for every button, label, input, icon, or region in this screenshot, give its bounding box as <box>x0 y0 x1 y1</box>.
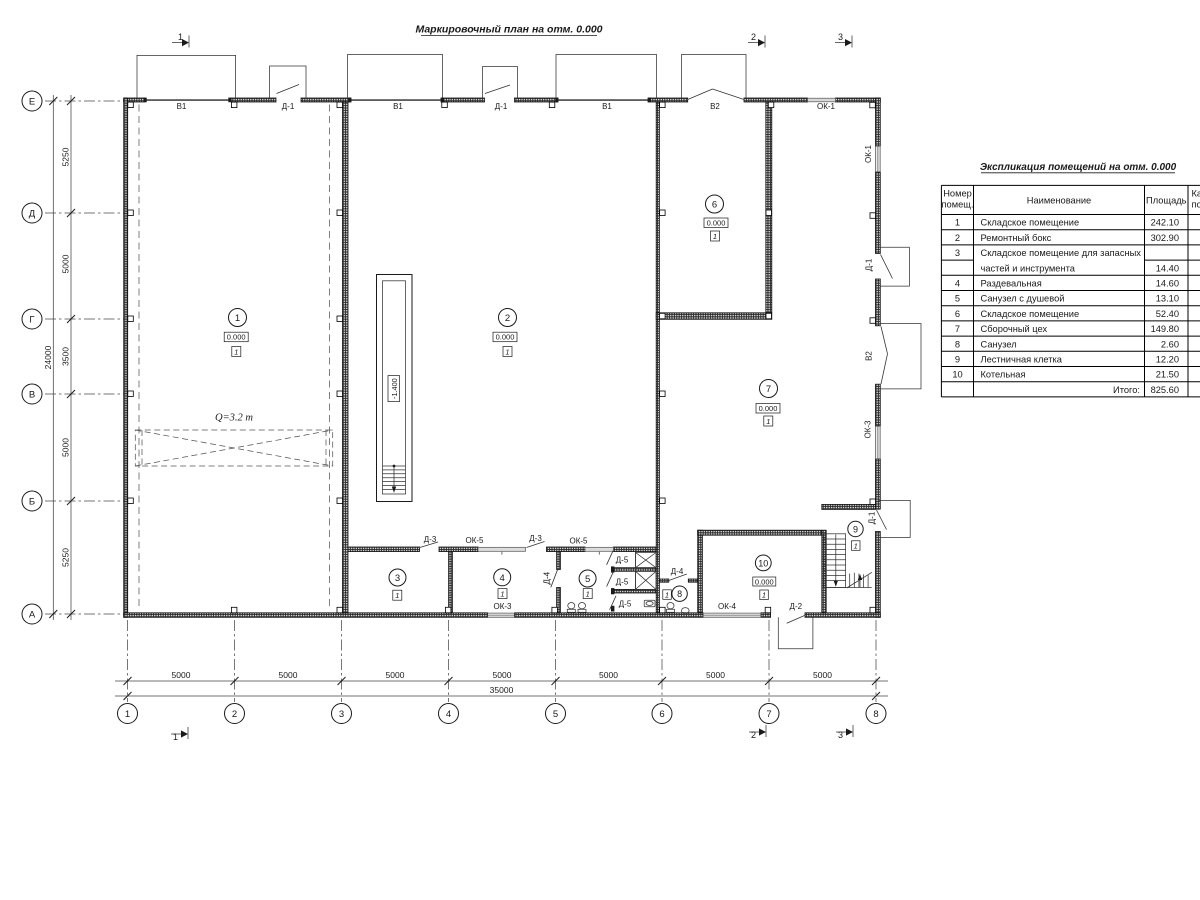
svg-text:ОК-4: ОК-4 <box>718 602 737 611</box>
svg-text:ОК-3: ОК-3 <box>864 420 873 439</box>
svg-text:1: 1 <box>762 591 766 600</box>
svg-text:52.40: 52.40 <box>1156 309 1179 319</box>
svg-text:3: 3 <box>838 32 843 42</box>
svg-text:5000: 5000 <box>599 670 618 680</box>
svg-text:Б: Б <box>29 497 35 508</box>
svg-text:Котельная: Котельная <box>981 370 1026 380</box>
svg-text:В1: В1 <box>393 102 403 111</box>
svg-text:Сборочный цех: Сборочный цех <box>981 324 1048 334</box>
svg-text:7: 7 <box>766 709 771 720</box>
svg-text:ОК-5: ОК-5 <box>466 536 485 545</box>
svg-text:В2: В2 <box>865 351 874 361</box>
svg-text:2: 2 <box>232 709 237 720</box>
svg-text:1: 1 <box>395 591 399 600</box>
svg-text:242.10: 242.10 <box>1151 218 1179 228</box>
svg-text:3500: 3500 <box>61 347 71 366</box>
svg-text:Санузел с душевой: Санузел с душевой <box>981 294 1065 304</box>
svg-text:0.000: 0.000 <box>759 404 778 413</box>
svg-text:5250: 5250 <box>61 147 71 166</box>
svg-text:помещ.: помещ. <box>942 200 974 210</box>
svg-text:825.60: 825.60 <box>1151 385 1179 395</box>
svg-text:2: 2 <box>505 313 510 324</box>
svg-text:5000: 5000 <box>386 670 405 680</box>
svg-text:1: 1 <box>713 232 717 241</box>
svg-text:ОК-3: ОК-3 <box>494 602 513 611</box>
svg-text:14.60: 14.60 <box>1156 279 1179 289</box>
svg-text:1: 1 <box>235 313 240 324</box>
svg-text:Д-2: Д-2 <box>790 602 803 611</box>
svg-text:2: 2 <box>751 730 756 740</box>
svg-text:8: 8 <box>955 339 960 349</box>
svg-text:0.000: 0.000 <box>707 219 726 228</box>
svg-text:0.000: 0.000 <box>227 333 246 342</box>
svg-text:2.60: 2.60 <box>1161 339 1179 349</box>
svg-text:1: 1 <box>854 541 858 550</box>
svg-text:Е: Е <box>29 97 35 108</box>
svg-text:Маркировочный план на отм. 0.0: Маркировочный план на отм. 0.000 <box>415 24 602 36</box>
svg-text:Лестничная клетка: Лестничная клетка <box>981 355 1063 365</box>
svg-text:3: 3 <box>395 573 400 584</box>
svg-text:6: 6 <box>659 709 664 720</box>
svg-text:5000: 5000 <box>279 670 298 680</box>
svg-text:Ка: Ка <box>1192 189 1200 199</box>
svg-text:Д-5: Д-5 <box>619 600 632 609</box>
svg-text:35000: 35000 <box>490 685 514 695</box>
svg-text:7: 7 <box>955 324 960 334</box>
svg-text:Q=3.2 т: Q=3.2 т <box>215 413 253 424</box>
svg-text:5000: 5000 <box>813 670 832 680</box>
svg-text:10: 10 <box>952 370 962 380</box>
svg-text:В1: В1 <box>602 102 612 111</box>
svg-text:5000: 5000 <box>493 670 512 680</box>
svg-text:А: А <box>29 610 36 621</box>
svg-text:ОК-5: ОК-5 <box>570 537 589 546</box>
svg-text:Г: Г <box>29 315 34 326</box>
svg-text:Итого:: Итого: <box>1113 385 1140 395</box>
svg-text:Раздевальная: Раздевальная <box>981 279 1042 289</box>
svg-text:В: В <box>29 390 35 401</box>
svg-text:1: 1 <box>125 709 130 720</box>
svg-text:12.20: 12.20 <box>1156 355 1179 365</box>
svg-text:4: 4 <box>955 279 960 289</box>
svg-text:Ремонтный бокс: Ремонтный бокс <box>981 233 1052 243</box>
svg-text:13.10: 13.10 <box>1156 294 1179 304</box>
svg-text:3: 3 <box>838 730 843 740</box>
svg-text:Складское помещение для запасн: Складское помещение для запасных <box>981 248 1142 258</box>
svg-text:1: 1 <box>500 589 504 598</box>
svg-text:5000: 5000 <box>61 438 71 457</box>
svg-text:Д-3: Д-3 <box>424 535 437 544</box>
svg-text:Д-5: Д-5 <box>616 577 629 586</box>
svg-text:302.90: 302.90 <box>1151 233 1179 243</box>
svg-text:14.40: 14.40 <box>1156 263 1179 273</box>
svg-text:8: 8 <box>677 589 682 599</box>
svg-text:1: 1 <box>665 590 669 599</box>
svg-text:В1: В1 <box>177 102 187 111</box>
svg-text:8: 8 <box>873 709 878 720</box>
svg-text:Наименование: Наименование <box>1027 196 1091 206</box>
svg-text:Складское помещение: Складское помещение <box>981 309 1080 319</box>
svg-text:1: 1 <box>234 347 238 356</box>
svg-text:Д: Д <box>29 209 36 220</box>
svg-text:149.80: 149.80 <box>1151 324 1179 334</box>
svg-text:Складское помещение: Складское помещение <box>981 218 1080 228</box>
svg-text:10: 10 <box>758 558 768 568</box>
svg-text:5250: 5250 <box>61 548 71 567</box>
svg-text:4: 4 <box>446 709 451 720</box>
svg-text:3: 3 <box>339 709 344 720</box>
svg-text:Экспликация помещений на отм.: Экспликация помещений на отм. 0.000 <box>980 162 1177 173</box>
svg-text:5: 5 <box>585 574 590 585</box>
svg-text:0.000: 0.000 <box>496 333 515 342</box>
svg-text:6: 6 <box>712 200 717 211</box>
svg-text:Санузел: Санузел <box>981 339 1017 349</box>
svg-text:Д-5: Д-5 <box>616 556 629 565</box>
svg-text:Д-3: Д-3 <box>529 534 542 543</box>
svg-text:9: 9 <box>955 355 960 365</box>
svg-text:В2: В2 <box>710 102 720 111</box>
svg-text:5: 5 <box>553 709 558 720</box>
svg-text:5000: 5000 <box>172 670 191 680</box>
svg-text:-1.400: -1.400 <box>390 378 399 399</box>
svg-text:5000: 5000 <box>706 670 725 680</box>
svg-text:5: 5 <box>955 294 960 304</box>
svg-text:9: 9 <box>853 525 858 535</box>
svg-text:2: 2 <box>751 32 756 42</box>
svg-text:Д-1: Д-1 <box>495 102 508 111</box>
svg-text:0.000: 0.000 <box>755 577 774 586</box>
svg-text:1: 1 <box>173 732 178 742</box>
svg-text:1: 1 <box>955 218 960 228</box>
svg-text:Д-4: Д-4 <box>671 567 684 576</box>
svg-text:4: 4 <box>500 573 505 584</box>
svg-text:2: 2 <box>955 233 960 243</box>
svg-text:5000: 5000 <box>61 254 71 273</box>
svg-text:ОК-1: ОК-1 <box>864 144 873 163</box>
svg-text:Д-4: Д-4 <box>543 571 552 584</box>
svg-text:6: 6 <box>955 309 960 319</box>
svg-text:3: 3 <box>955 248 960 258</box>
svg-text:по: по <box>1192 200 1200 210</box>
svg-text:24000: 24000 <box>43 345 53 369</box>
svg-text:Номер: Номер <box>943 189 972 199</box>
svg-text:ОК-1: ОК-1 <box>817 102 836 111</box>
svg-text:7: 7 <box>766 384 771 395</box>
svg-text:Площадь: Площадь <box>1146 196 1187 206</box>
svg-text:Д-1: Д-1 <box>865 258 874 271</box>
svg-text:частей и инструмента: частей и инструмента <box>981 263 1076 273</box>
svg-text:Д-1: Д-1 <box>868 511 877 524</box>
svg-text:21.50: 21.50 <box>1156 370 1179 380</box>
svg-text:1: 1 <box>586 589 590 598</box>
svg-text:1: 1 <box>766 417 770 426</box>
svg-text:Д-1: Д-1 <box>282 102 295 111</box>
svg-text:1: 1 <box>505 347 509 356</box>
